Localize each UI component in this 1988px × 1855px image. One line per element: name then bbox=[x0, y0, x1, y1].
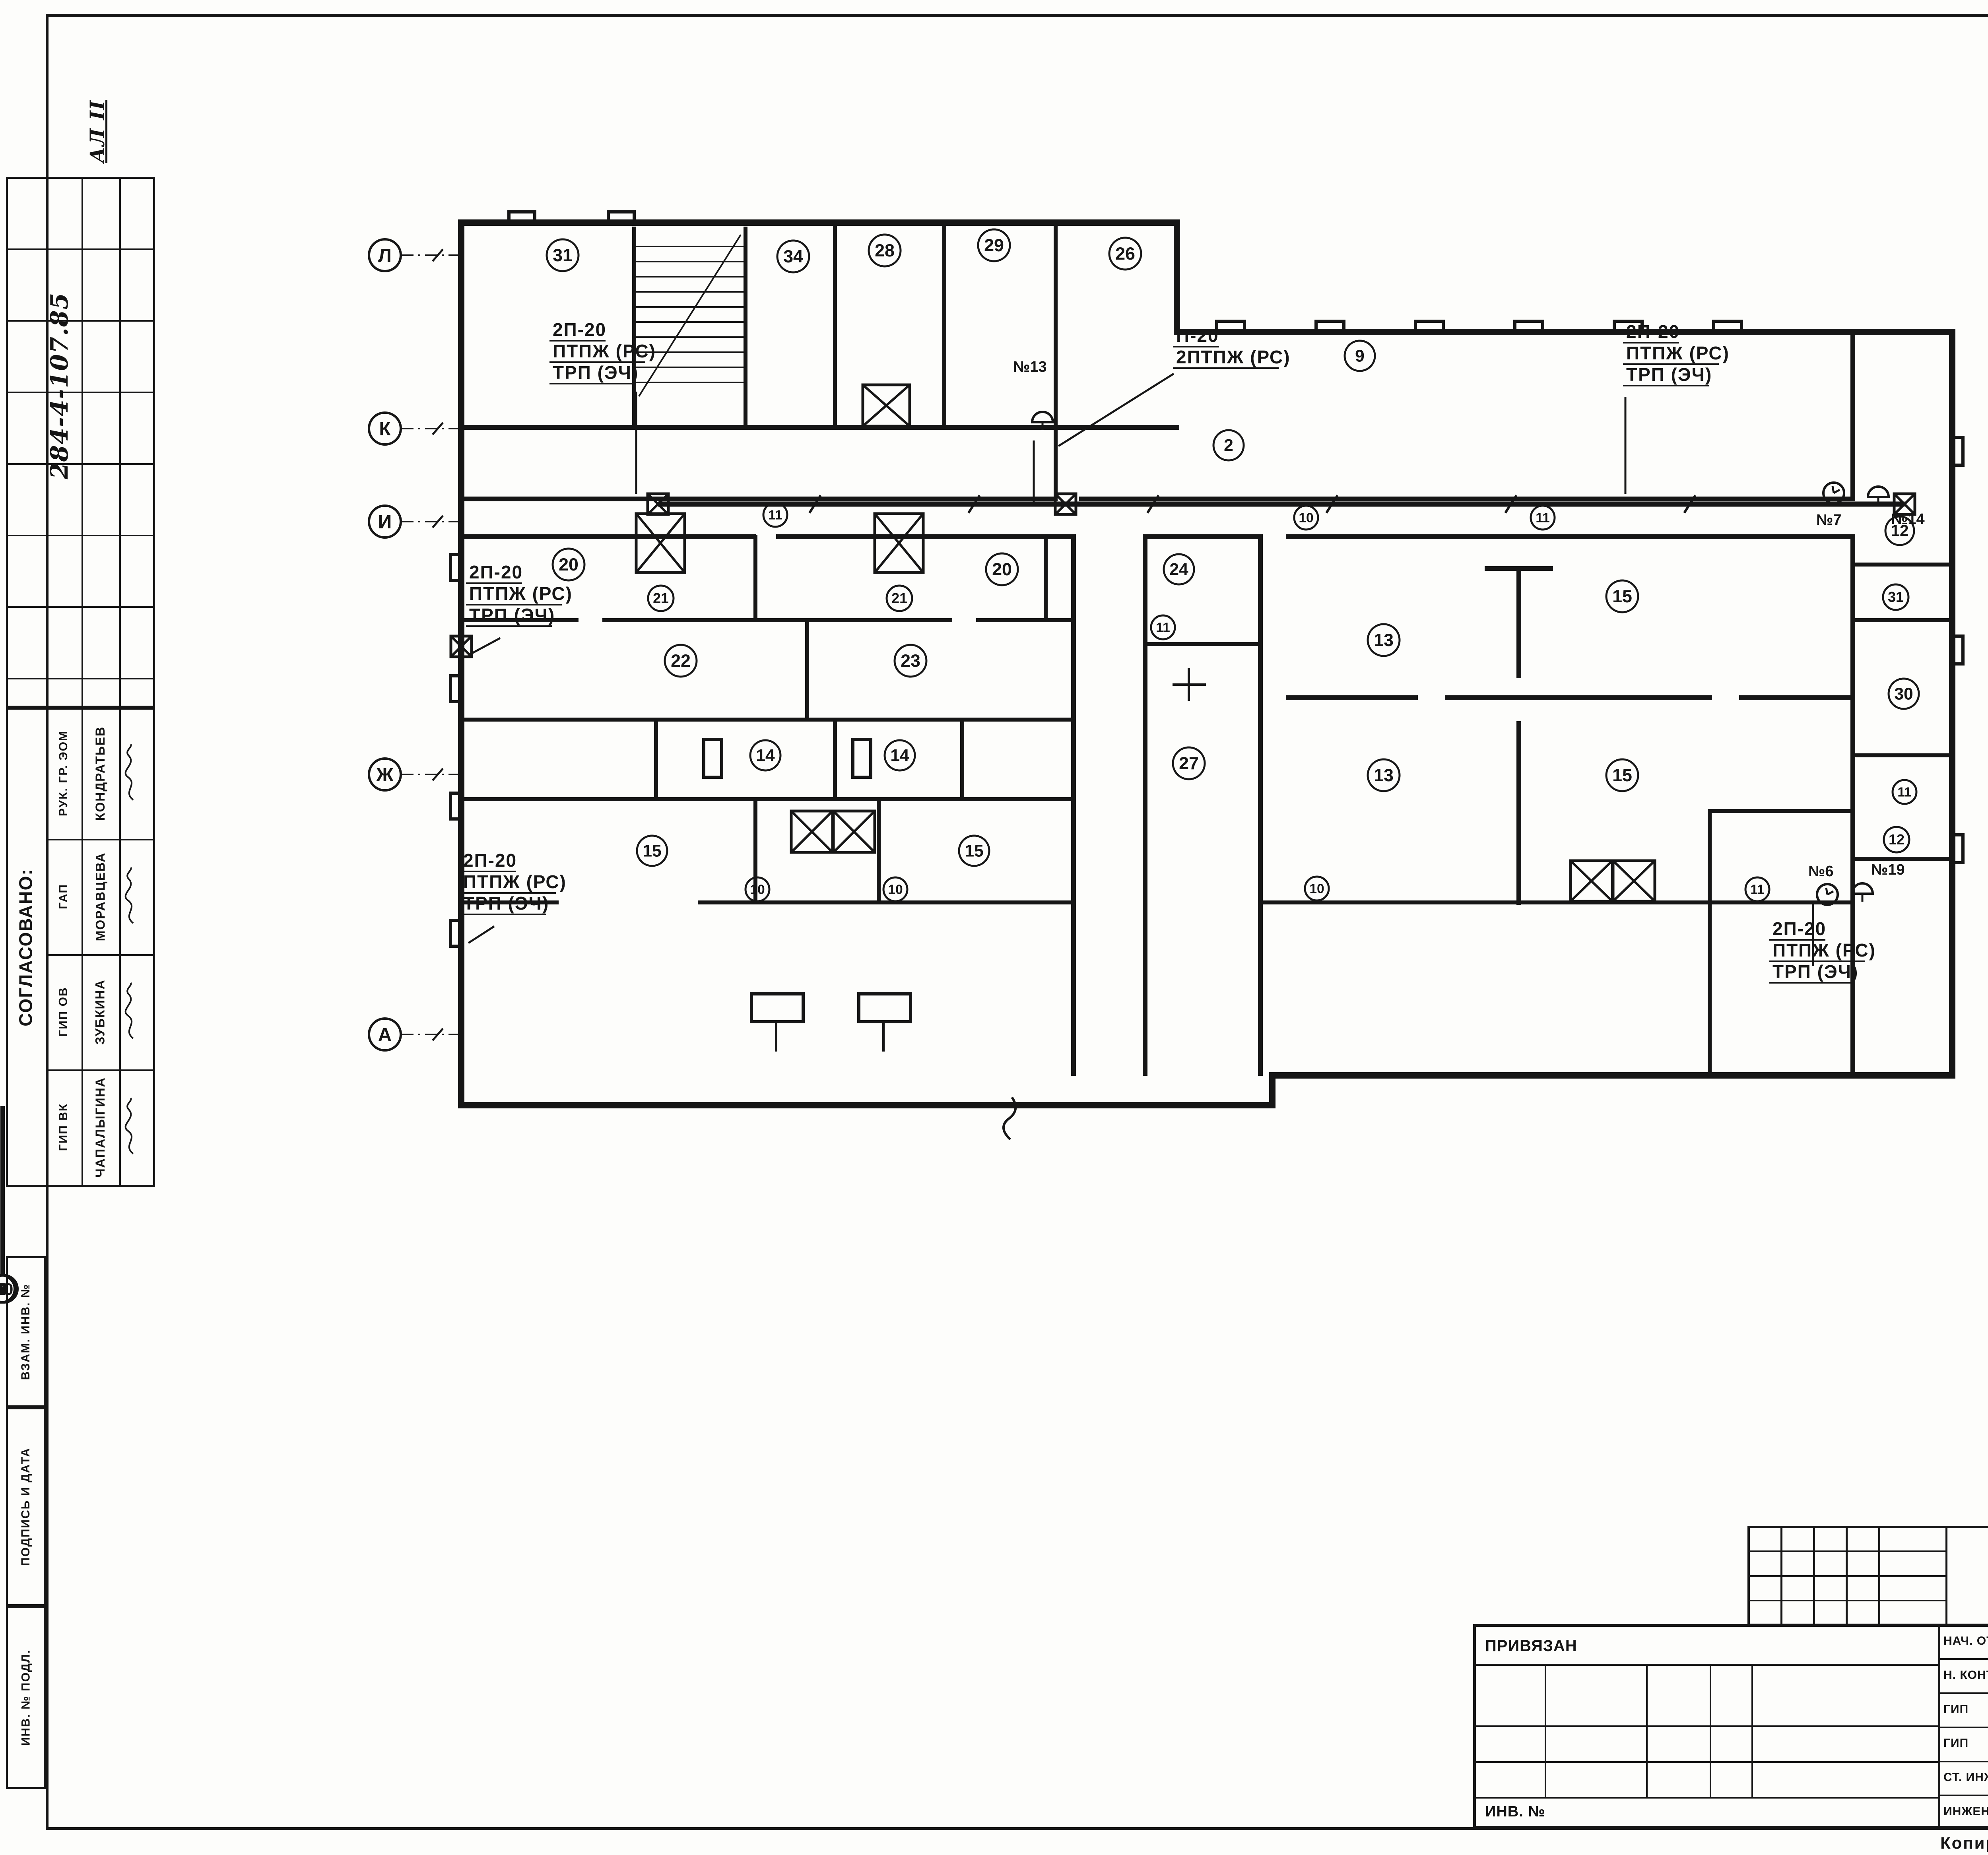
device-number-label: №6 bbox=[1808, 863, 1834, 880]
room-number: 23 bbox=[901, 651, 920, 671]
room-number: 15 bbox=[643, 841, 661, 860]
table-line bbox=[1710, 1666, 1711, 1797]
radio-socket-icon bbox=[1032, 412, 1053, 422]
riser-label-line: П-20 bbox=[1176, 325, 1219, 346]
room-number: 21 bbox=[891, 590, 907, 606]
riser-label-line: ТРП (ЭЧ) bbox=[1626, 364, 1712, 385]
binding-label: ПРИВЯЗАН bbox=[1485, 1628, 1684, 1664]
table-line bbox=[1473, 1664, 1938, 1666]
room-number: 29 bbox=[984, 235, 1004, 255]
staff-role: ГИП bbox=[1943, 1726, 1988, 1760]
clock-hand bbox=[1826, 888, 1827, 895]
riser-label-line: 2П-20 bbox=[469, 562, 523, 582]
axis-label: А bbox=[378, 1025, 392, 1046]
room-number: 2 bbox=[1224, 436, 1233, 455]
room-number: 24 bbox=[1169, 560, 1188, 579]
room-number: 9 bbox=[1355, 346, 1365, 365]
room-number: 22 bbox=[671, 651, 691, 671]
room-number: 21 bbox=[653, 590, 669, 606]
room-number: 10 bbox=[750, 882, 765, 897]
room-number: 15 bbox=[1612, 765, 1632, 785]
room-number: 27 bbox=[1179, 753, 1199, 773]
room-number: 15 bbox=[1612, 586, 1632, 606]
room-number: 12 bbox=[1889, 832, 1905, 848]
clock-hand bbox=[1833, 486, 1834, 493]
table-line bbox=[1473, 1725, 1938, 1727]
device-number-label: №7 bbox=[1816, 512, 1842, 528]
wall bbox=[639, 235, 740, 396]
table-line bbox=[1473, 1761, 1938, 1763]
room-number: 14 bbox=[756, 746, 775, 765]
riser-label-line: 2П-20 bbox=[1773, 918, 1826, 939]
riser-label-line: ТРП (ЭЧ) bbox=[463, 893, 549, 914]
blueprint-sheet: { "page": { "sheet_corner_number": "84",… bbox=[0, 0, 1988, 1855]
axis-label: И bbox=[378, 512, 392, 533]
room-number: 10 bbox=[1309, 881, 1324, 896]
device-number-label: №19 bbox=[1871, 862, 1905, 878]
room-number: 13 bbox=[1374, 630, 1394, 650]
room-number: 11 bbox=[1156, 620, 1170, 635]
room-number: 26 bbox=[1115, 244, 1135, 264]
room-number: 13 bbox=[1374, 765, 1394, 785]
room-number: 31 bbox=[553, 245, 573, 265]
riser-label-line: 2П-20 bbox=[463, 850, 517, 871]
room-number: 14 bbox=[890, 746, 909, 765]
window-pier bbox=[704, 739, 722, 777]
room-number: 11 bbox=[1897, 785, 1912, 799]
riser-label-line: 2ПТПЖ (РС) bbox=[1176, 347, 1291, 367]
radio-socket-icon bbox=[1868, 487, 1889, 497]
axis-label: Ж bbox=[376, 765, 394, 786]
floor-plan: ЛКИЖА34578910313428292692111011202021212… bbox=[0, 0, 1988, 1855]
staff-role: ГИП bbox=[1943, 1692, 1988, 1727]
room-number: 30 bbox=[1894, 684, 1913, 703]
room-number: 34 bbox=[783, 246, 803, 266]
axis-label: Л bbox=[378, 245, 392, 266]
riser-label-line: 2П-20 bbox=[553, 319, 606, 340]
staff-role: ИНЖЕНЕР bbox=[1943, 1795, 1988, 1829]
riser-label-line: 2П-20 bbox=[1626, 321, 1680, 342]
leader-line bbox=[468, 638, 500, 655]
table-line bbox=[1751, 1666, 1753, 1797]
staff-role: СТ. ИНЖ bbox=[1943, 1760, 1988, 1795]
room-number: 15 bbox=[965, 841, 983, 860]
staff-role: НАЧ. ОТД. bbox=[1943, 1624, 1988, 1658]
table-line bbox=[1747, 1575, 1945, 1577]
room-number: 31 bbox=[1888, 589, 1904, 605]
room-number: 20 bbox=[559, 555, 579, 574]
riser-label-line: ПТПЖ (РС) bbox=[463, 871, 567, 892]
riser-label-line: ТРП (ЭЧ) bbox=[553, 362, 639, 383]
window-pier bbox=[853, 739, 871, 777]
staff-role: Н. КОНТР. bbox=[1943, 1658, 1988, 1692]
room-number: 20 bbox=[992, 559, 1012, 579]
doc-number: 284-4-107.85 bbox=[1945, 1526, 1988, 1626]
riser-label-line: ТРП (ЭЧ) bbox=[469, 605, 555, 625]
leader-line bbox=[1058, 374, 1174, 446]
riser-label-line: ПТПЖ (РС) bbox=[1773, 940, 1876, 960]
riser-label-line: ПТПЖ (РС) bbox=[469, 583, 573, 604]
table-line bbox=[1646, 1666, 1648, 1797]
table-line bbox=[1747, 1550, 1945, 1552]
axis-label: 10 bbox=[0, 1280, 13, 1298]
room-number: 11 bbox=[768, 508, 782, 522]
leader-line bbox=[468, 926, 494, 943]
riser-label-line: ПТПЖ (РС) bbox=[553, 341, 656, 361]
window-pier bbox=[751, 994, 803, 1022]
riser-label-line: ПТПЖ (РС) bbox=[1626, 343, 1730, 363]
room-number: 11 bbox=[1750, 882, 1765, 897]
device-number-label: №13 bbox=[1013, 359, 1047, 375]
table-line bbox=[1747, 1600, 1945, 1601]
room-number: 10 bbox=[1299, 510, 1313, 525]
kopiroval-label: Копировал bbox=[1940, 1834, 1988, 1853]
room-number: 10 bbox=[888, 882, 903, 897]
table-line bbox=[1545, 1666, 1546, 1797]
window-pier bbox=[859, 994, 911, 1022]
device-number-label: №14 bbox=[1891, 511, 1925, 528]
riser-label-line: ТРП (ЭЧ) bbox=[1773, 961, 1858, 982]
room-number: 11 bbox=[1536, 510, 1550, 525]
axis-label: К bbox=[379, 419, 391, 440]
room-number: 28 bbox=[875, 241, 895, 260]
inv-label: ИНВ. № bbox=[1485, 1797, 1604, 1827]
